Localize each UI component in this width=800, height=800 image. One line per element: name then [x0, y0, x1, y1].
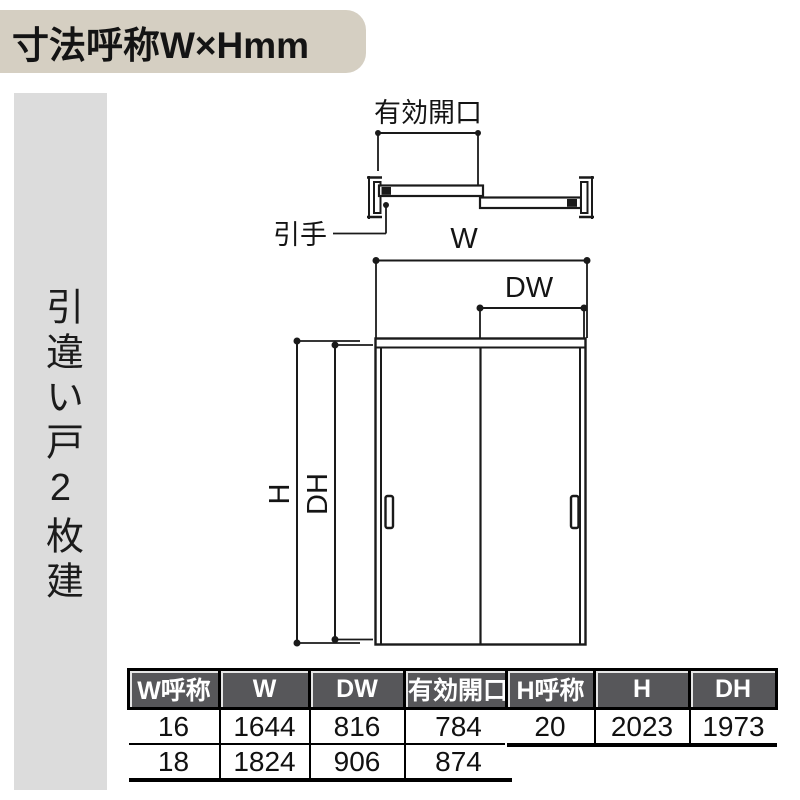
plan-left-door-panel — [379, 186, 483, 197]
col-header-w: W — [220, 670, 310, 709]
cell-dw: 906 — [310, 744, 405, 780]
cell-dw: 816 — [310, 709, 405, 745]
w-dimension — [373, 257, 591, 338]
cell-opening: 784 — [405, 709, 512, 745]
cell-h-name: 20 — [507, 709, 595, 746]
plan-right-door-panel — [480, 198, 581, 209]
table-row: 18 1824 906 874 — [129, 744, 512, 780]
effective-opening-label: 有効開口 — [374, 98, 482, 128]
col-header-dh: DH — [690, 670, 777, 709]
dw-dimension-label: DW — [505, 272, 554, 304]
plan-view: 有効開口 引手 — [273, 98, 594, 250]
plan-left-door-handle — [382, 187, 392, 195]
handle-label: 引手 — [273, 220, 327, 250]
cell-w-name: 16 — [129, 709, 220, 745]
elevation-view: W DW H — [264, 223, 591, 647]
col-header-w-name: W呼称 — [129, 670, 220, 709]
table-row: 20 2023 1973 — [507, 709, 777, 746]
table-row: 16 1644 816 784 — [129, 709, 512, 745]
right-door-flush-handle — [571, 496, 579, 528]
cell-opening: 874 — [405, 744, 512, 780]
col-header-dw: DW — [310, 670, 405, 709]
left-jamb-symbol — [367, 176, 382, 219]
col-header-h-name: H呼称 — [507, 670, 595, 709]
cell-w: 1644 — [220, 709, 310, 745]
cell-h: 2023 — [595, 709, 690, 746]
w-dimension-label: W — [450, 223, 478, 255]
table-header-row: W呼称 W DW 有効開口 — [129, 670, 512, 709]
cell-w: 1824 — [220, 744, 310, 780]
col-header-opening: 有効開口 — [405, 670, 512, 709]
cell-w-name: 18 — [129, 744, 220, 780]
dh-dimension-label: DH — [302, 473, 334, 515]
leader-dot — [383, 202, 389, 208]
right-jamb-symbol — [579, 176, 594, 219]
effective-opening-dimension — [375, 130, 481, 194]
table-header-row: H呼称 H DH — [507, 670, 777, 709]
dw-dimension — [477, 305, 588, 339]
h-dimension-label: H — [264, 484, 296, 505]
height-spec-table: H呼称 H DH 20 2023 1973 — [505, 668, 778, 747]
left-door-flush-handle — [386, 496, 394, 528]
cell-dh: 1973 — [690, 709, 777, 746]
plan-right-door-handle — [567, 199, 577, 207]
dh-dimension — [332, 342, 374, 644]
col-header-h: H — [595, 670, 690, 709]
width-spec-table: W呼称 W DW 有効開口 16 1644 816 784 18 1824 90… — [127, 668, 513, 782]
